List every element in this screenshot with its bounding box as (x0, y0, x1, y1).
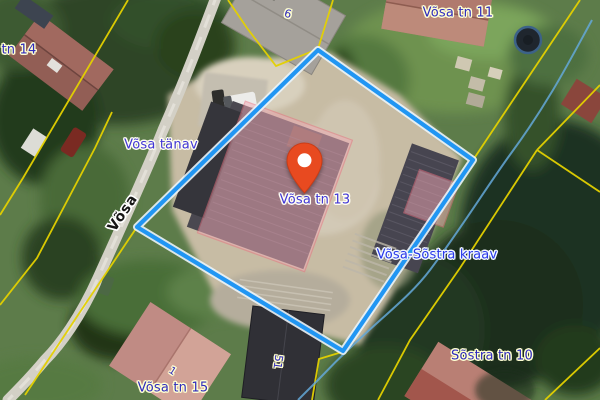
location-pin-icon[interactable] (286, 142, 323, 195)
map-viewport[interactable]: tn 14 Võsa tn 11 9 Võsa tänav Võsa Võsa … (0, 0, 600, 400)
aerial-map-canvas[interactable] (0, 0, 600, 400)
